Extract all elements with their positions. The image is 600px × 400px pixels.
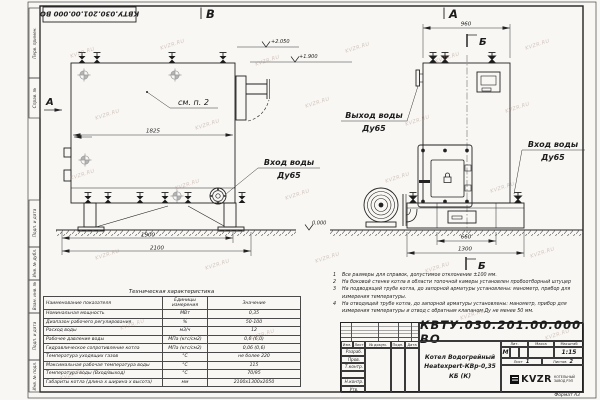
section-mark-bottom: Б	[478, 261, 486, 272]
inlet-valve	[515, 193, 522, 204]
door-latch-icon	[444, 173, 451, 183]
dim-1825: 1825	[146, 129, 160, 135]
view-b-label: В	[206, 7, 215, 21]
sheet-value: 1	[526, 359, 529, 365]
company-name: КОТЕЛЬНЫЙ ЗАВОД РЭП	[554, 375, 575, 383]
note-number: 4	[333, 301, 342, 315]
tech-characteristics: Техническая характеристика Наименование …	[43, 289, 300, 387]
note-item: 4На отводящей трубе котла, до запорной а…	[333, 301, 589, 315]
product-name-line2: Heatexpert-КВр-0,35 КБ (К)	[420, 362, 500, 381]
elev-top: +2.050	[271, 39, 290, 45]
note-item: 2На боковой стенке котла в области топоч…	[333, 279, 589, 286]
door-handle	[419, 180, 430, 183]
note-text: Все размеры для справок, допустимое откл…	[342, 272, 589, 279]
dim-960: 960	[461, 22, 472, 28]
dim-660: 660	[461, 235, 472, 241]
elev-body: +1.900	[299, 54, 318, 60]
margin-label: Инв. № дубл.	[32, 249, 37, 278]
product-name-line1: Котел Водогрейный	[425, 353, 495, 363]
dim-2100: 2100	[150, 246, 164, 252]
sheets-label: Листов	[553, 360, 566, 364]
company-logo: KVZR КОТЕЛЬНЫЙ ЗАВОД РЭП	[501, 365, 584, 393]
note-number: 2	[333, 279, 342, 286]
col-header: Значение	[208, 297, 301, 310]
view-a	[364, 53, 524, 234]
inlet-size-a: Ду65	[540, 153, 565, 162]
role-label: Разраб.	[341, 348, 365, 356]
rev-col: Изм.	[341, 341, 353, 348]
margin-label: Инв. № подл.	[32, 362, 37, 391]
note-text: На отводящей трубе котла, до запорной ар…	[342, 301, 589, 315]
product-name: Котел Водогрейный Heatexpert-КВр-0,35 КБ…	[419, 341, 501, 393]
revision-grid	[341, 323, 419, 341]
control-panel	[477, 72, 500, 92]
view-arrow-label: А	[45, 97, 54, 108]
lit-value: М	[501, 347, 510, 358]
outlet-label: Выход воды	[345, 111, 403, 120]
sheet-label: Лист	[514, 360, 523, 364]
note-text: На боковой стенке котла в области топочн…	[342, 279, 589, 286]
top-stamp: КВТУ.030.201.00.000 ВО	[40, 7, 139, 22]
margin-label: Справ. №	[32, 87, 37, 108]
elev-zero: 0.000	[312, 221, 326, 227]
role-label: Утв.	[341, 386, 365, 394]
note-number: 1	[333, 272, 342, 279]
margin-label: Перв. примен.	[32, 27, 37, 58]
sheet-cell: Лист1	[501, 358, 542, 365]
margin-label: Подп. и дата	[32, 208, 37, 237]
mass-value	[528, 347, 554, 358]
note-ref: см. п. 2	[178, 98, 209, 107]
rev-col: Лист	[353, 341, 365, 348]
inlet-size-b: Ду65	[276, 171, 301, 180]
water-inlet-flange	[210, 188, 226, 204]
margin-labels: Перв. примен. Справ. № Подп. и дата Инв.…	[32, 27, 37, 390]
top-stamp-text: КВТУ.030.201.00.000 ВО	[40, 10, 139, 18]
format-note: Формат А3	[505, 393, 580, 398]
furnace-door	[418, 145, 472, 207]
view-b-valves	[78, 53, 246, 205]
rev-col: Дата	[405, 341, 419, 348]
drawing-sheet: Перв. примен. Справ. № Подп. и дата Инв.…	[0, 0, 600, 400]
table-row: Рабочее давление водыМПа (кгс/см2)0,6 (6…	[44, 335, 301, 344]
scale-value: 1:15	[554, 347, 584, 358]
col-header: Наименование показателя	[44, 297, 163, 310]
document-designation: КВТУ.030.201.00.000 ВО	[419, 323, 584, 341]
table-row: Расход водым3/ч12	[44, 327, 301, 336]
sheets-value: 2	[569, 359, 572, 365]
table-row: Максимальная рабочая температура воды°С1…	[44, 361, 301, 370]
leader-dot	[146, 91, 148, 93]
margin-label: Взам. инв. №	[32, 281, 37, 310]
ground	[56, 230, 583, 236]
table-row: Гидравлическое сопротивление котлаМПа (к…	[44, 344, 301, 353]
role-label: Пров.	[341, 356, 365, 364]
note-item: 1Все размеры для справок, допустимое отк…	[333, 272, 589, 279]
inlet-label-a: Вход воды	[528, 140, 579, 149]
table-row: Температура уходящих газов°Сне более 220	[44, 352, 301, 361]
dim-1300: 1300	[458, 247, 472, 253]
logo-text: KVZR	[521, 374, 552, 385]
table-row: Номинальная мощностьМВт0,35	[44, 310, 301, 319]
inlet-label-b: Вход воды	[264, 158, 315, 167]
table-row: Габариты котла (длина х ширина х высота)…	[44, 378, 301, 387]
table-row: Температура воды (Вход/выход)°С70/95	[44, 370, 301, 379]
notes-section: 1Все размеры для справок, допустимое отк…	[333, 272, 589, 315]
title-block: КВТУ.030.201.00.000 ВО Изм. Лист № докум…	[340, 322, 583, 392]
view-b	[64, 63, 270, 231]
note-text: На подводящей трубе котла, до запорной а…	[342, 286, 589, 300]
blower-fan	[364, 188, 417, 227]
tech-table-title: Техническая характеристика	[43, 289, 300, 295]
margin-label: Подп. и дата	[32, 321, 37, 350]
section-mark-top: Б	[479, 37, 487, 48]
rev-col: № докум.	[365, 341, 391, 348]
dim-1900: 1900	[141, 233, 155, 239]
role-label	[341, 371, 365, 379]
tech-table: Наименование показателя Единицы измерени…	[43, 296, 301, 387]
outlet-size: Ду65	[361, 124, 386, 133]
col-header: Единицы измерения	[163, 297, 208, 310]
rev-col: Подп.	[391, 341, 405, 348]
role-label: Н.контр.	[341, 378, 365, 386]
sheets-cell: Листов2	[542, 358, 584, 365]
kvzr-logo-icon	[510, 375, 519, 384]
role-label: Т.контр.	[341, 363, 365, 371]
view-a-label: А	[448, 7, 458, 21]
table-row: Диапазон рабочего регулирования%50-100	[44, 318, 301, 327]
note-item: 3На подводящей трубе котла, до запорной …	[333, 286, 589, 300]
note-number: 3	[333, 286, 342, 300]
